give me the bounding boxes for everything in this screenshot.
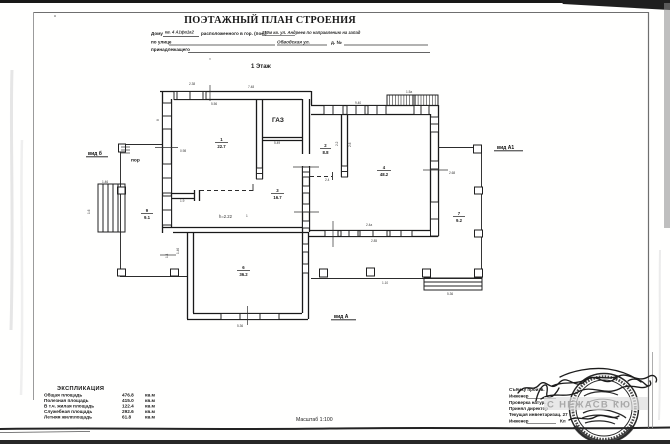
svg-text:2.68: 2.68 bbox=[449, 171, 455, 175]
svg-text:Служебная площадь: Служебная площадь bbox=[44, 408, 92, 414]
svg-text:250м кв. ул. Андреев по направ: 250м кв. ул. Андреев по направлению на з… bbox=[261, 30, 361, 35]
svg-text:61.8: 61.8 bbox=[122, 415, 132, 420]
svg-text:1.9: 1.9 bbox=[180, 199, 185, 203]
svg-text:принадлежащего: принадлежащего bbox=[151, 47, 190, 52]
svg-text:5.36: 5.36 bbox=[237, 324, 243, 328]
svg-text:7.48: 7.48 bbox=[248, 85, 254, 89]
svg-text:2.4: 2.4 bbox=[325, 178, 330, 182]
svg-text:Масштаб 1:100: Масштаб 1:100 bbox=[296, 417, 333, 423]
svg-text:вид б: вид б bbox=[88, 150, 102, 157]
svg-text:476.8: 476.8 bbox=[122, 393, 134, 398]
svg-text:С НЕЖАСВ КЮ: С НЕЖАСВ КЮ bbox=[547, 400, 631, 411]
svg-text:кв.м: кв.м bbox=[145, 415, 156, 420]
svg-text:1: 1 bbox=[246, 214, 248, 218]
svg-text:1.46: 1.46 bbox=[176, 248, 180, 254]
svg-text:1 Этаж: 1 Этаж bbox=[251, 64, 272, 70]
svg-text:9.2: 9.2 bbox=[456, 218, 463, 223]
svg-text:расположенного в гор. (пос.): расположенного в гор. (пос.) bbox=[201, 31, 267, 36]
svg-text:36.2: 36.2 bbox=[239, 272, 248, 277]
svg-text:пор: пор bbox=[131, 159, 140, 164]
svg-text:Текущая инвентаризац. 27: Текущая инвентаризац. 27 bbox=[509, 412, 568, 417]
svg-text:8.8: 8.8 bbox=[323, 150, 330, 155]
svg-text:5.49: 5.49 bbox=[274, 141, 280, 145]
svg-text:h=2.22: h=2.22 bbox=[219, 214, 233, 219]
svg-text:16.7: 16.7 bbox=[273, 195, 282, 200]
svg-text:122.4: 122.4 bbox=[122, 404, 134, 409]
svg-text:Кл: Кл bbox=[560, 419, 566, 424]
svg-text:кв.м: кв.м bbox=[145, 409, 156, 414]
svg-text:415.0: 415.0 bbox=[122, 398, 134, 403]
svg-text:Проверка натур.: Проверка натур. bbox=[509, 400, 546, 405]
svg-text:кв. 4 А1фа1а2: кв. 4 А1фа1а2 bbox=[165, 30, 195, 35]
svg-text:9.40: 9.40 bbox=[355, 101, 361, 105]
svg-text:Полезная площадь: Полезная площадь bbox=[44, 398, 89, 403]
svg-text:2.6: 2.6 bbox=[348, 142, 352, 147]
svg-text:2.2: 2.2 bbox=[335, 141, 339, 146]
svg-text:1.10: 1.10 bbox=[382, 281, 388, 285]
svg-text:кв.м: кв.м bbox=[145, 393, 156, 398]
svg-text:Инженер: Инженер bbox=[509, 419, 529, 424]
svg-text:1.46: 1.46 bbox=[102, 180, 108, 184]
svg-text:вид А: вид А bbox=[334, 314, 349, 320]
svg-text:0.98: 0.98 bbox=[180, 149, 186, 153]
svg-text:22.7: 22.7 bbox=[217, 144, 226, 149]
svg-text:2.38: 2.38 bbox=[189, 82, 195, 86]
svg-text:ЭКСПЛИКАЦИЯ: ЭКСПЛИКАЦИЯ bbox=[57, 386, 104, 392]
svg-text:5.36: 5.36 bbox=[447, 292, 453, 296]
svg-text:по улице: по улице bbox=[151, 40, 172, 45]
svg-text:Обводская ул.: Обводская ул. bbox=[277, 39, 310, 45]
svg-text:5.56: 5.56 bbox=[211, 102, 217, 106]
svg-text:Общая площадь: Общая площадь bbox=[44, 392, 82, 398]
svg-text:ПОЭТАЖНЫЙ ПЛАН СТРОЕНИЯ: ПОЭТАЖНЫЙ ПЛАН СТРОЕНИЯ bbox=[184, 14, 356, 26]
svg-text:кв.м: кв.м bbox=[145, 398, 156, 403]
svg-text:2.85: 2.85 bbox=[371, 239, 377, 243]
svg-text:292.6: 292.6 bbox=[122, 409, 134, 414]
svg-text:Летняя жилплощадь: Летняя жилплощадь bbox=[44, 415, 92, 420]
svg-text:Дому: Дому bbox=[151, 31, 163, 36]
svg-text:8: 8 bbox=[156, 119, 160, 121]
svg-text:д. №: д. № bbox=[331, 40, 342, 45]
svg-text:48.2: 48.2 bbox=[380, 172, 389, 177]
svg-text:9.1: 9.1 bbox=[144, 215, 151, 220]
svg-text:ГАЗ: ГАЗ bbox=[272, 117, 284, 124]
svg-text:1.6: 1.6 bbox=[87, 209, 91, 214]
svg-text:вид А1: вид А1 bbox=[497, 145, 514, 151]
svg-text:1.5а: 1.5а bbox=[406, 90, 412, 94]
svg-text:2.4а: 2.4а bbox=[366, 223, 372, 227]
svg-text:Принял директор: Принял директор bbox=[509, 406, 548, 411]
svg-text:1.4: 1.4 bbox=[165, 253, 169, 258]
svg-text:Инженер: Инженер bbox=[509, 394, 529, 399]
svg-text:В т.ч. жилая площадь: В т.ч. жилая площадь bbox=[44, 404, 94, 409]
svg-text:кв.м: кв.м bbox=[145, 404, 156, 409]
